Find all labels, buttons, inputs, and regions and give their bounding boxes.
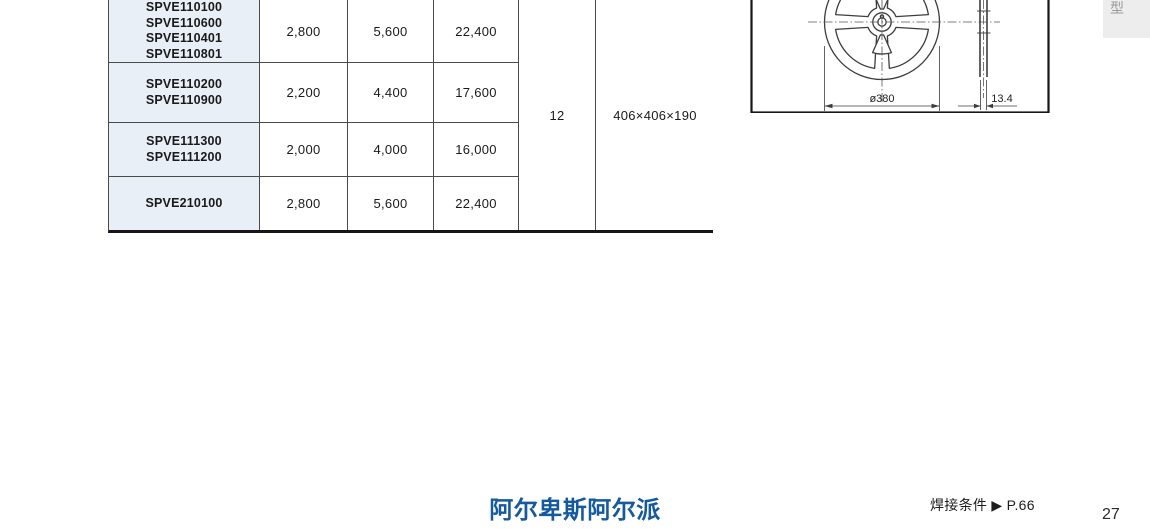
carton-size-cell: 406×406×190	[596, 0, 714, 230]
part-number-cell: SPVE111300 SPVE111200	[109, 123, 260, 177]
reel-width-label: 13.4	[991, 93, 1012, 105]
qty-cell: 5,600	[348, 0, 434, 63]
inner-carton-qty: 12	[549, 108, 564, 123]
reel-drawing: ø380 13.4	[750, 0, 1050, 113]
qty-cell: 4,000	[348, 123, 434, 177]
part-number-cell: SPVE110100 SPVE110600 SPVE110401 SPVE110…	[109, 0, 260, 63]
qty-cell: 2,800	[260, 177, 348, 230]
solder-condition-reference[interactable]: 焊接条件 ▶ P.66	[930, 495, 1035, 515]
part-number-cell: SPVE110200 SPVE110900	[109, 63, 260, 123]
carton-size: 406×406×190	[613, 108, 697, 123]
qty-cell: 16,000	[434, 123, 519, 177]
qty-cell: 17,600	[434, 63, 519, 123]
qty-cell: 4,400	[348, 63, 434, 123]
reel-diameter-label: ø380	[869, 93, 894, 105]
qty-cell: 5,600	[348, 177, 434, 230]
side-tab: 型	[1103, 0, 1150, 38]
brand-logo-text: 阿尔卑斯阿尔派	[440, 497, 710, 525]
side-tab-label: 型	[1103, 0, 1150, 16]
qty-cell: 2,800	[260, 0, 348, 63]
qty-cell: 22,400	[434, 177, 519, 230]
inner-carton-qty-cell: 12	[519, 0, 596, 230]
qty-cell: 2,200	[260, 63, 348, 123]
page-number: 27	[1102, 506, 1120, 524]
qty-cell: 2,000	[260, 123, 348, 177]
packaging-table: 12 406×406×190 SPVE110100 SPVE110600 SPV…	[108, 0, 713, 233]
part-number-cell: SPVE210100	[109, 177, 260, 230]
qty-cell: 22,400	[434, 0, 519, 63]
